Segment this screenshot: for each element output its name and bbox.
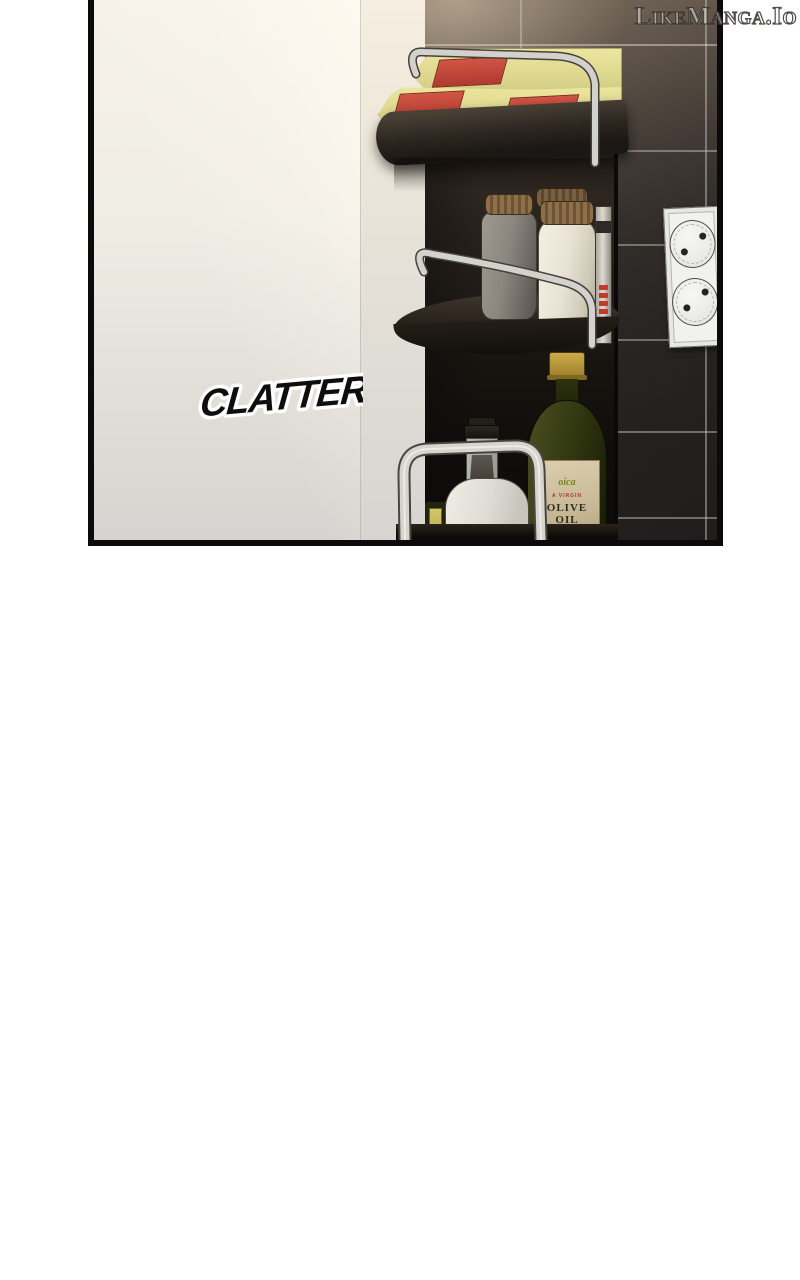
label-small-text: A VIRGIN [535,493,599,499]
glass-bottle [440,417,530,540]
site-watermark: LikeManga.Io [575,1,797,32]
socket-top [669,219,717,269]
panel-content: oica A VIRGIN OLIVE OIL [94,0,717,540]
sfx-text: CLATTER [199,368,363,426]
olive-oil-bottle: oica A VIRGIN OLIVE OIL [527,352,607,540]
tile-grout-line [425,44,717,46]
manga-panel: oica A VIRGIN OLIVE OIL [88,0,723,546]
glass-bottle-cap [464,425,500,439]
socket-hole [702,288,709,295]
wall-corner-face [360,0,426,540]
glass-bottle-stopper [470,455,494,480]
manga-page: oica A VIRGIN OLIVE OIL [0,0,800,1280]
socket-bottom [671,277,719,327]
bottom-shelf-edge [396,524,618,540]
tile-grout-line [618,150,717,152]
gray-jar-lid [485,194,533,215]
gray-jar [481,212,537,320]
tile-grout-line [618,431,717,433]
canister-cap [596,221,611,233]
tile-grout-line [618,517,717,519]
shelf-shadow [394,158,618,192]
socket-hole [699,232,706,239]
socket-hole [683,304,690,311]
label-brand-script: oica [535,477,599,488]
package-label [432,56,509,88]
bottle-cap [549,352,585,376]
power-outlet [663,206,723,348]
sfx-clatter: CLATTER [188,364,363,430]
white-wall [94,0,360,540]
cream-jar-lid [540,201,594,225]
socket-hole [681,248,688,255]
label-big-text: OLIVE OIL [535,502,599,526]
